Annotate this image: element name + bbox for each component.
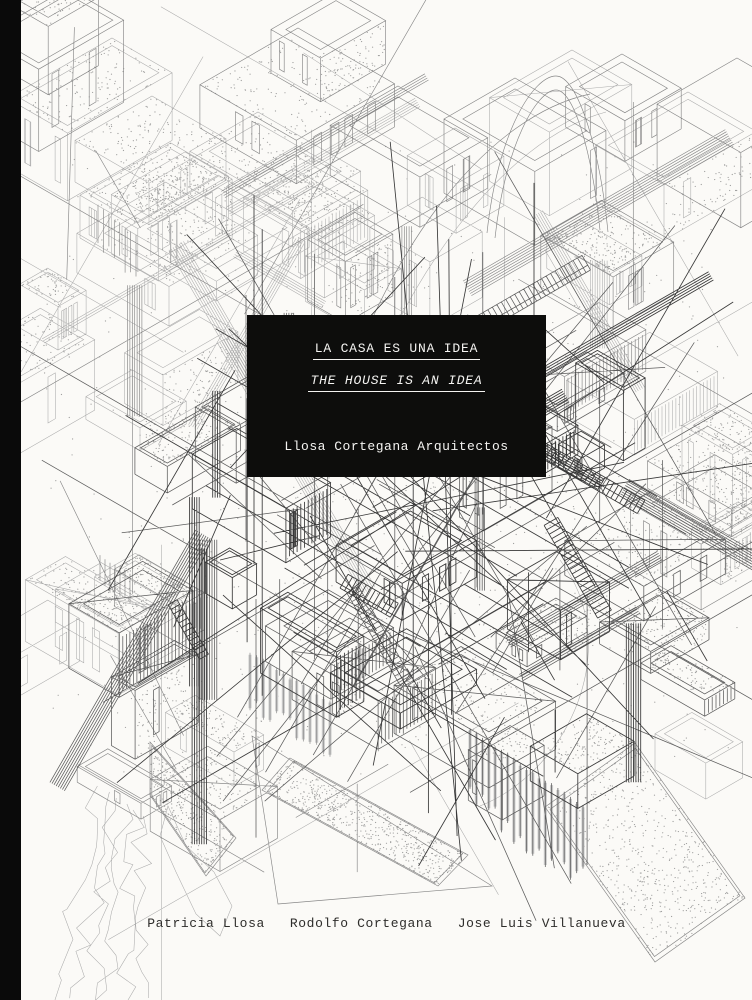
title-english-text: THE HOUSE IS AN IDEA xyxy=(308,373,484,392)
title-spanish: LA CASA ES UNA IDEA xyxy=(247,341,546,360)
book-spine xyxy=(0,0,21,1000)
title-box: LA CASA ES UNA IDEA THE HOUSE IS AN IDEA… xyxy=(247,315,546,477)
author-name-2: Rodolfo Cortegana xyxy=(290,916,433,931)
author-name-1: Patricia Llosa xyxy=(147,916,265,931)
axonometric-line-drawing xyxy=(21,0,752,1000)
title-english: THE HOUSE IS AN IDEA xyxy=(247,373,546,392)
book-cover: LA CASA ES UNA IDEA THE HOUSE IS AN IDEA… xyxy=(0,0,752,1000)
drawing-layer-mid xyxy=(21,0,752,962)
author-name-3: Jose Luis Villanueva xyxy=(458,916,626,931)
author-names: Patricia Llosa Rodolfo Cortegana Jose Lu… xyxy=(21,916,752,931)
title-spanish-text: LA CASA ES UNA IDEA xyxy=(313,341,480,360)
studio-name: Llosa Cortegana Arquitectos xyxy=(247,439,546,454)
